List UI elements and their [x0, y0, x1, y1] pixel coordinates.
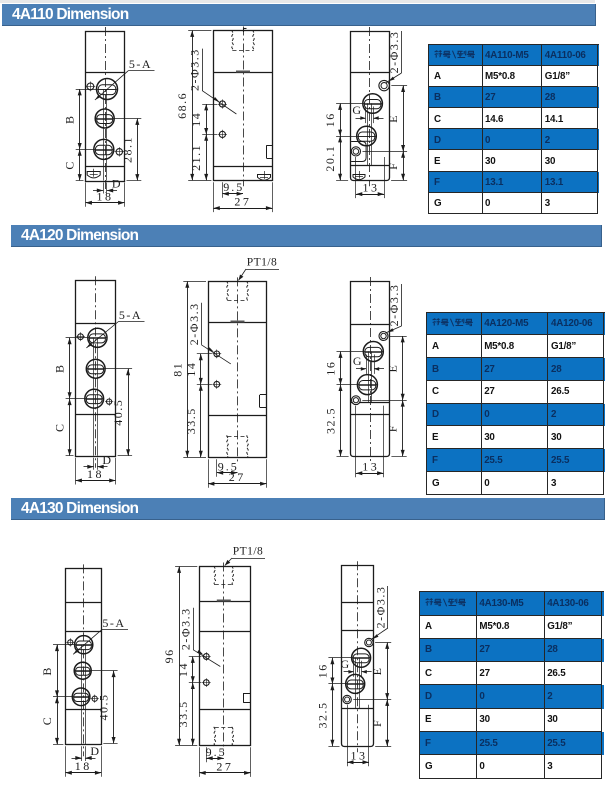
svg-text:16: 16 [323, 112, 337, 127]
svg-text:E: E [370, 667, 384, 676]
svg-text:33.5: 33.5 [184, 407, 198, 434]
svg-text:2-Φ3.3: 2-Φ3.3 [387, 31, 401, 74]
svg-text:C: C [63, 160, 77, 170]
svg-text:C: C [40, 716, 54, 726]
svg-text:2-Φ3.3: 2-Φ3.3 [373, 586, 387, 629]
svg-text:13: 13 [362, 460, 379, 474]
svg-text:32.5: 32.5 [315, 702, 329, 729]
svg-text:20.1: 20.1 [323, 145, 337, 172]
svg-text:2-Φ3.3: 2-Φ3.3 [187, 302, 201, 345]
svg-text:G: G [341, 657, 351, 671]
svg-text:5-A: 5-A [102, 616, 125, 630]
svg-text:13: 13 [351, 749, 368, 763]
svg-text:68.6: 68.6 [175, 92, 189, 119]
svg-text:F: F [386, 162, 400, 170]
svg-text:33.5: 33.5 [176, 700, 190, 727]
svg-text:B: B [53, 363, 67, 373]
svg-text:40.5: 40.5 [97, 694, 111, 721]
svg-text:27: 27 [216, 759, 233, 773]
svg-text:G: G [353, 354, 363, 368]
svg-text:13: 13 [363, 181, 380, 195]
svg-text:16: 16 [315, 663, 329, 678]
svg-text:E: E [386, 364, 400, 373]
svg-text:18: 18 [87, 467, 104, 481]
svg-text:2-Φ3.3: 2-Φ3.3 [179, 607, 193, 650]
svg-text:16: 16 [324, 361, 338, 376]
svg-text:28.1: 28.1 [120, 136, 134, 163]
svg-text:5-A: 5-A [129, 57, 152, 71]
svg-text:9.5: 9.5 [223, 180, 244, 194]
svg-text:9.5: 9.5 [206, 745, 227, 759]
svg-text:D: D [102, 453, 112, 467]
svg-text:81: 81 [170, 362, 184, 377]
svg-text:D: D [90, 744, 100, 758]
svg-text:14: 14 [176, 662, 190, 677]
svg-text:32.5: 32.5 [324, 407, 338, 434]
svg-text:F: F [386, 424, 400, 432]
svg-text:2-Φ3.3: 2-Φ3.3 [387, 284, 401, 327]
svg-text:40.5: 40.5 [111, 399, 125, 426]
svg-text:G: G [352, 103, 362, 117]
svg-text:B: B [40, 666, 54, 676]
svg-text:18: 18 [97, 189, 114, 203]
svg-text:PT1/8: PT1/8 [247, 257, 278, 269]
svg-text:F: F [370, 719, 384, 727]
svg-text:14: 14 [189, 112, 203, 127]
svg-text:E: E [386, 114, 400, 123]
svg-text:B: B [63, 114, 77, 124]
svg-text:PT1/8: PT1/8 [233, 546, 264, 558]
svg-text:2-Φ3.3: 2-Φ3.3 [188, 48, 202, 91]
svg-text:21.1: 21.1 [189, 144, 203, 171]
svg-text:C: C [53, 422, 67, 432]
svg-text:27: 27 [234, 195, 251, 209]
svg-text:27: 27 [229, 470, 246, 484]
svg-text:96: 96 [162, 648, 176, 663]
svg-text:14: 14 [184, 362, 198, 377]
svg-text:18: 18 [75, 759, 92, 773]
svg-text:5-A: 5-A [119, 308, 142, 322]
